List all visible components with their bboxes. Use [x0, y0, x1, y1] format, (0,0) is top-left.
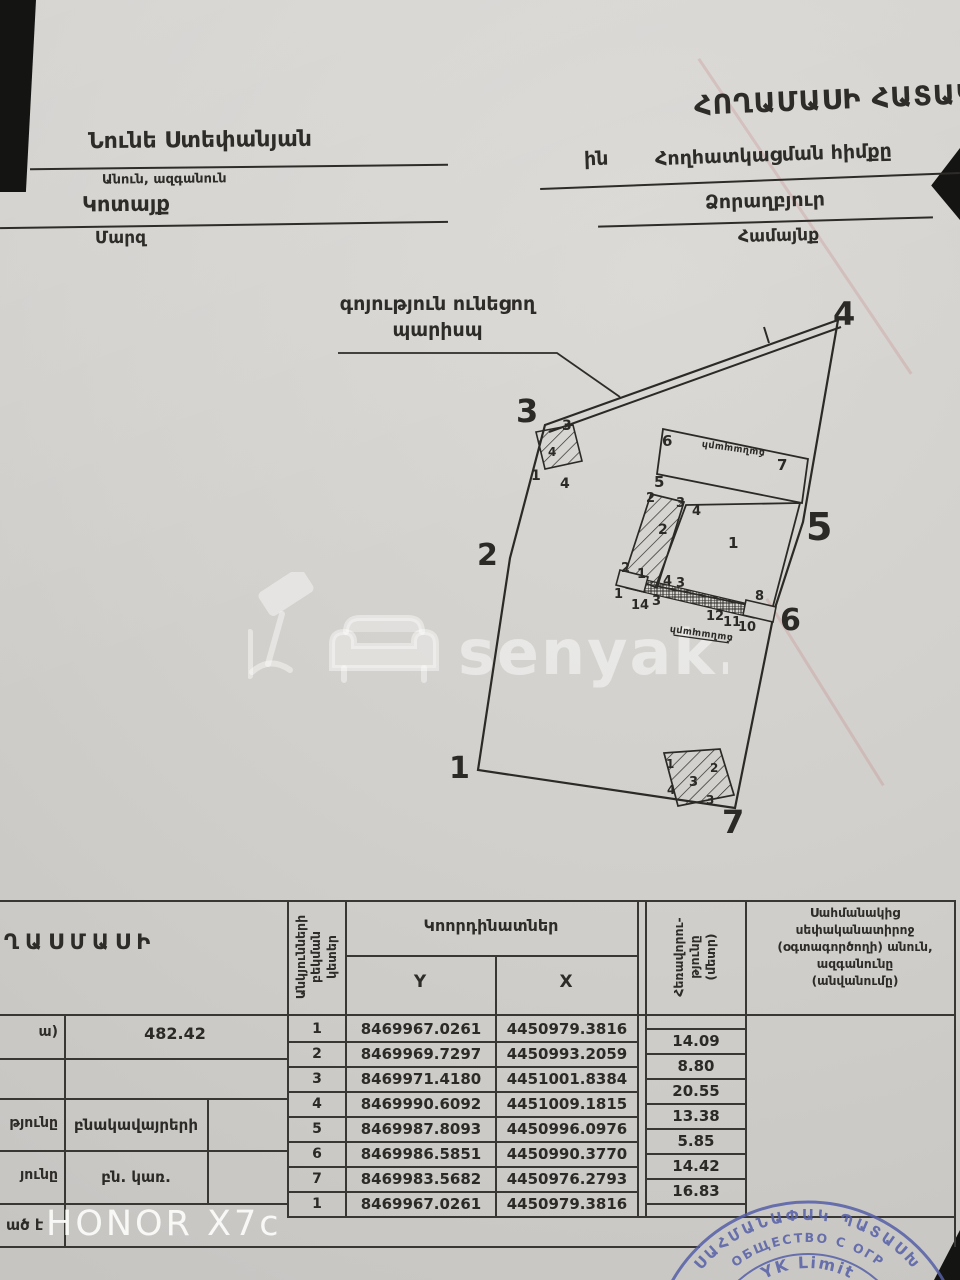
- diagram-point-label: 1: [531, 468, 541, 484]
- owner-name-value: Նունե Ստեփանյան: [88, 127, 312, 154]
- table-line: [207, 1098, 209, 1203]
- table-line: [0, 1098, 287, 1100]
- column-x-header: X: [495, 972, 637, 992]
- table-line: [745, 900, 747, 1216]
- diagram-point-label: 7: [722, 803, 744, 841]
- community-value: Ձորաղբյուր: [705, 188, 825, 213]
- diagram-point-label: 10: [738, 620, 756, 635]
- stamp-arc-inner-text: YK Limit: [757, 1253, 858, 1280]
- site-watermark-text: senyak.am: [458, 616, 728, 689]
- segment-distance: 20.55: [647, 1080, 745, 1102]
- table-row-y: 8469969.7297: [347, 1043, 495, 1065]
- table-border-right: [954, 900, 956, 1247]
- diagram-point-label: 3: [516, 392, 538, 430]
- table-row-y: 8469971.4180: [347, 1068, 495, 1090]
- table-row-y: 8469986.5851: [347, 1143, 495, 1165]
- crease-line: [765, 598, 884, 786]
- callout-leader-line: [338, 353, 620, 397]
- left-header-fragment: ՂԱՍՄԱՍԻ: [4, 930, 156, 954]
- table-row-y: 8469967.0261: [347, 1193, 495, 1215]
- corners-header-line: Անկյունների: [293, 915, 309, 999]
- segment-distance: 14.09: [647, 1030, 745, 1052]
- plot-boundary: [478, 320, 838, 808]
- table-row-y: 8469967.0261: [347, 1018, 495, 1040]
- basis-underline: [540, 172, 960, 190]
- corners-header-line: կետեր: [324, 935, 340, 979]
- diagram-point-labels: 123456734146752342121114343812111012343: [449, 295, 855, 841]
- diagram-point-label: 7: [777, 456, 787, 474]
- row-label-fragment: յունը: [0, 1167, 58, 1183]
- segment-distance: 14.42: [647, 1155, 745, 1177]
- table-row-y: 8469983.5682: [347, 1168, 495, 1190]
- fence-tick: [764, 327, 769, 343]
- table-row-x: 4450990.3770: [497, 1143, 637, 1165]
- distance-column-header: Հեռավորու- թյունը (մետր): [650, 909, 740, 1005]
- table-row-x: 4450996.0976: [497, 1118, 637, 1140]
- region-label: Մարզ: [95, 228, 146, 249]
- area-label-fragment: ա): [0, 1024, 58, 1040]
- structure-strip: [657, 429, 808, 503]
- community-label: Համայնք: [738, 225, 820, 247]
- document-title: ՀՈՂԱՄԱՍԻ ՀԱՏԱԿԱԳ: [693, 77, 960, 122]
- owner-name-label: Անուն, ազգանուն: [102, 171, 227, 187]
- diagram-point-label: 5: [806, 505, 832, 549]
- owner-column-header: Սահմանակից սեփականատիրոջ (օգտագործողի) ա…: [757, 905, 953, 990]
- segment-distance: 16.83: [647, 1180, 745, 1202]
- diagram-point-label: 4: [692, 504, 701, 519]
- segment-distance: 13.38: [647, 1105, 745, 1127]
- segment-distance: 8.80: [647, 1055, 745, 1077]
- table-row-x: 4450979.3816: [497, 1193, 637, 1215]
- diagram-point-label: 3: [689, 775, 698, 790]
- lamp-icon: [250, 572, 315, 676]
- corners-column-header: Անկյունների բեկման կետեր: [288, 902, 344, 1012]
- table-row-point: 4: [289, 1093, 345, 1115]
- table-line: [287, 1216, 956, 1218]
- basis-label: Հողհատկացման հիմքը: [655, 140, 892, 170]
- table-line: [0, 1150, 287, 1152]
- table-border-bottom: [0, 1246, 700, 1248]
- distance-header-line: Հեռավորու-: [671, 917, 687, 997]
- distance-header-line: թյունը: [687, 935, 703, 978]
- diagram-point-label: 2: [477, 538, 498, 573]
- segment-distance: 5.85: [647, 1130, 745, 1152]
- area-value: 482.42: [70, 1023, 280, 1045]
- table-line: [345, 955, 637, 957]
- table-row-point: 3: [289, 1068, 345, 1090]
- fence-callout-line2: պարիսպ: [392, 319, 482, 341]
- table-row-x: 4451001.8384: [497, 1068, 637, 1090]
- fence-callout: գոյություն ունեցող պարիսպ: [330, 292, 545, 343]
- photo-edge-bottom-right: [934, 1230, 960, 1280]
- diagram-point-label: 3: [676, 496, 685, 511]
- table-row-x: 4450979.3816: [497, 1018, 637, 1040]
- coordinates-header: Կոորդինատներ: [345, 916, 637, 935]
- site-watermark: senyak.am: [248, 572, 728, 702]
- owner-header-line: սեփականատիրոջ: [757, 922, 953, 939]
- diagram-point-label: 6: [662, 432, 672, 450]
- table-row-point: 2: [289, 1043, 345, 1065]
- diagram-point-label: 6: [780, 603, 801, 638]
- photo-edge-left: [0, 0, 36, 192]
- diagram-point-label: 4: [667, 783, 675, 797]
- diagram-point-label: 5: [654, 473, 664, 491]
- diagram-point-label: 8: [755, 589, 764, 604]
- table-row-point: 6: [289, 1143, 345, 1165]
- table-border: [0, 900, 956, 902]
- row-label-fragment: թյունը: [0, 1115, 58, 1131]
- diagram-point-label: 1: [666, 757, 674, 771]
- diagram-point-label: 2: [646, 491, 655, 506]
- table-row-point: 1: [289, 1018, 345, 1040]
- table-row-point: 7: [289, 1168, 345, 1190]
- owner-header-line: Սահմանակից: [757, 905, 953, 922]
- column-y-header: Y: [345, 972, 495, 992]
- landuse-value: բնակավայրերի: [66, 1114, 206, 1136]
- diagram-point-label: 4: [548, 445, 556, 459]
- owner-header-line: (անվանումը): [757, 973, 953, 990]
- sofa-icon: [332, 618, 436, 680]
- diagram-point-label: 3: [706, 793, 714, 807]
- fence-line: [549, 327, 841, 432]
- table-line: [0, 1058, 287, 1060]
- diagram-point-label: 1: [449, 751, 470, 786]
- fence-callout-line1: գոյություն ունեցող: [340, 293, 535, 315]
- diagram-point-label: 2: [710, 761, 718, 775]
- scanned-land-plan-photo: ՀՈՂԱՄԱՍԻ ՀԱՏԱԿԱԳ Նունե Ստեփանյան Անուն, …: [0, 0, 960, 1280]
- diagram-point-label: 4: [833, 295, 855, 333]
- structure-square-bottom: [664, 749, 734, 806]
- table-row-x: 4450976.2793: [497, 1168, 637, 1190]
- stamp-arc-middle-text: ОБЩЕСТВО С ОГР: [728, 1230, 887, 1270]
- corners-header-line: բեկման: [308, 931, 324, 983]
- table-row-point: 1: [289, 1193, 345, 1215]
- owner-header-line: ազգանունը: [757, 956, 953, 973]
- table-row-y: 8469987.8093: [347, 1118, 495, 1140]
- table-line: [0, 1014, 956, 1016]
- round-stamp: ՍԱՀՄԱՆԱՓԱԿ ՊԱՏԱՍԽ ОБЩЕСТВО С ОГР YK Limi…: [652, 1202, 960, 1280]
- photo-edge-top-right: [928, 148, 960, 220]
- table-row-y: 8469990.6092: [347, 1093, 495, 1115]
- table-row-point: 5: [289, 1118, 345, 1140]
- table-row-x: 4450993.2059: [497, 1043, 637, 1065]
- svg-text:YK Limit: YK Limit: [757, 1253, 858, 1280]
- camera-watermark: HONOR X7c: [46, 1204, 282, 1244]
- table-row-x: 4451009.1815: [497, 1093, 637, 1115]
- purpose-value: բն. կառ.: [66, 1166, 206, 1188]
- bottom-fragment: ած է: [6, 1216, 43, 1234]
- strip-rotated-label: ճանապարհ: [701, 439, 766, 459]
- diagram-point-label: 3: [562, 418, 572, 434]
- table-line: [637, 900, 639, 1216]
- table-line: [645, 1203, 745, 1205]
- diagram-point-label: 2: [658, 522, 668, 538]
- structure-square-top: [536, 425, 582, 469]
- diagram-point-label: 1: [728, 534, 738, 552]
- owner-header-line: (օգտագործողի) անուն,: [757, 939, 953, 956]
- svg-text:ОБЩЕСТВО С ОГР: ОБЩЕСТВО С ОГР: [728, 1230, 887, 1270]
- region-underline: [0, 221, 448, 229]
- basis-prefix: ին: [584, 148, 609, 171]
- distance-header-line: (մետր): [703, 933, 719, 980]
- region-value: Կոտայք: [82, 192, 170, 217]
- diagram-point-label: 4: [560, 476, 570, 492]
- name-underline: [30, 164, 448, 170]
